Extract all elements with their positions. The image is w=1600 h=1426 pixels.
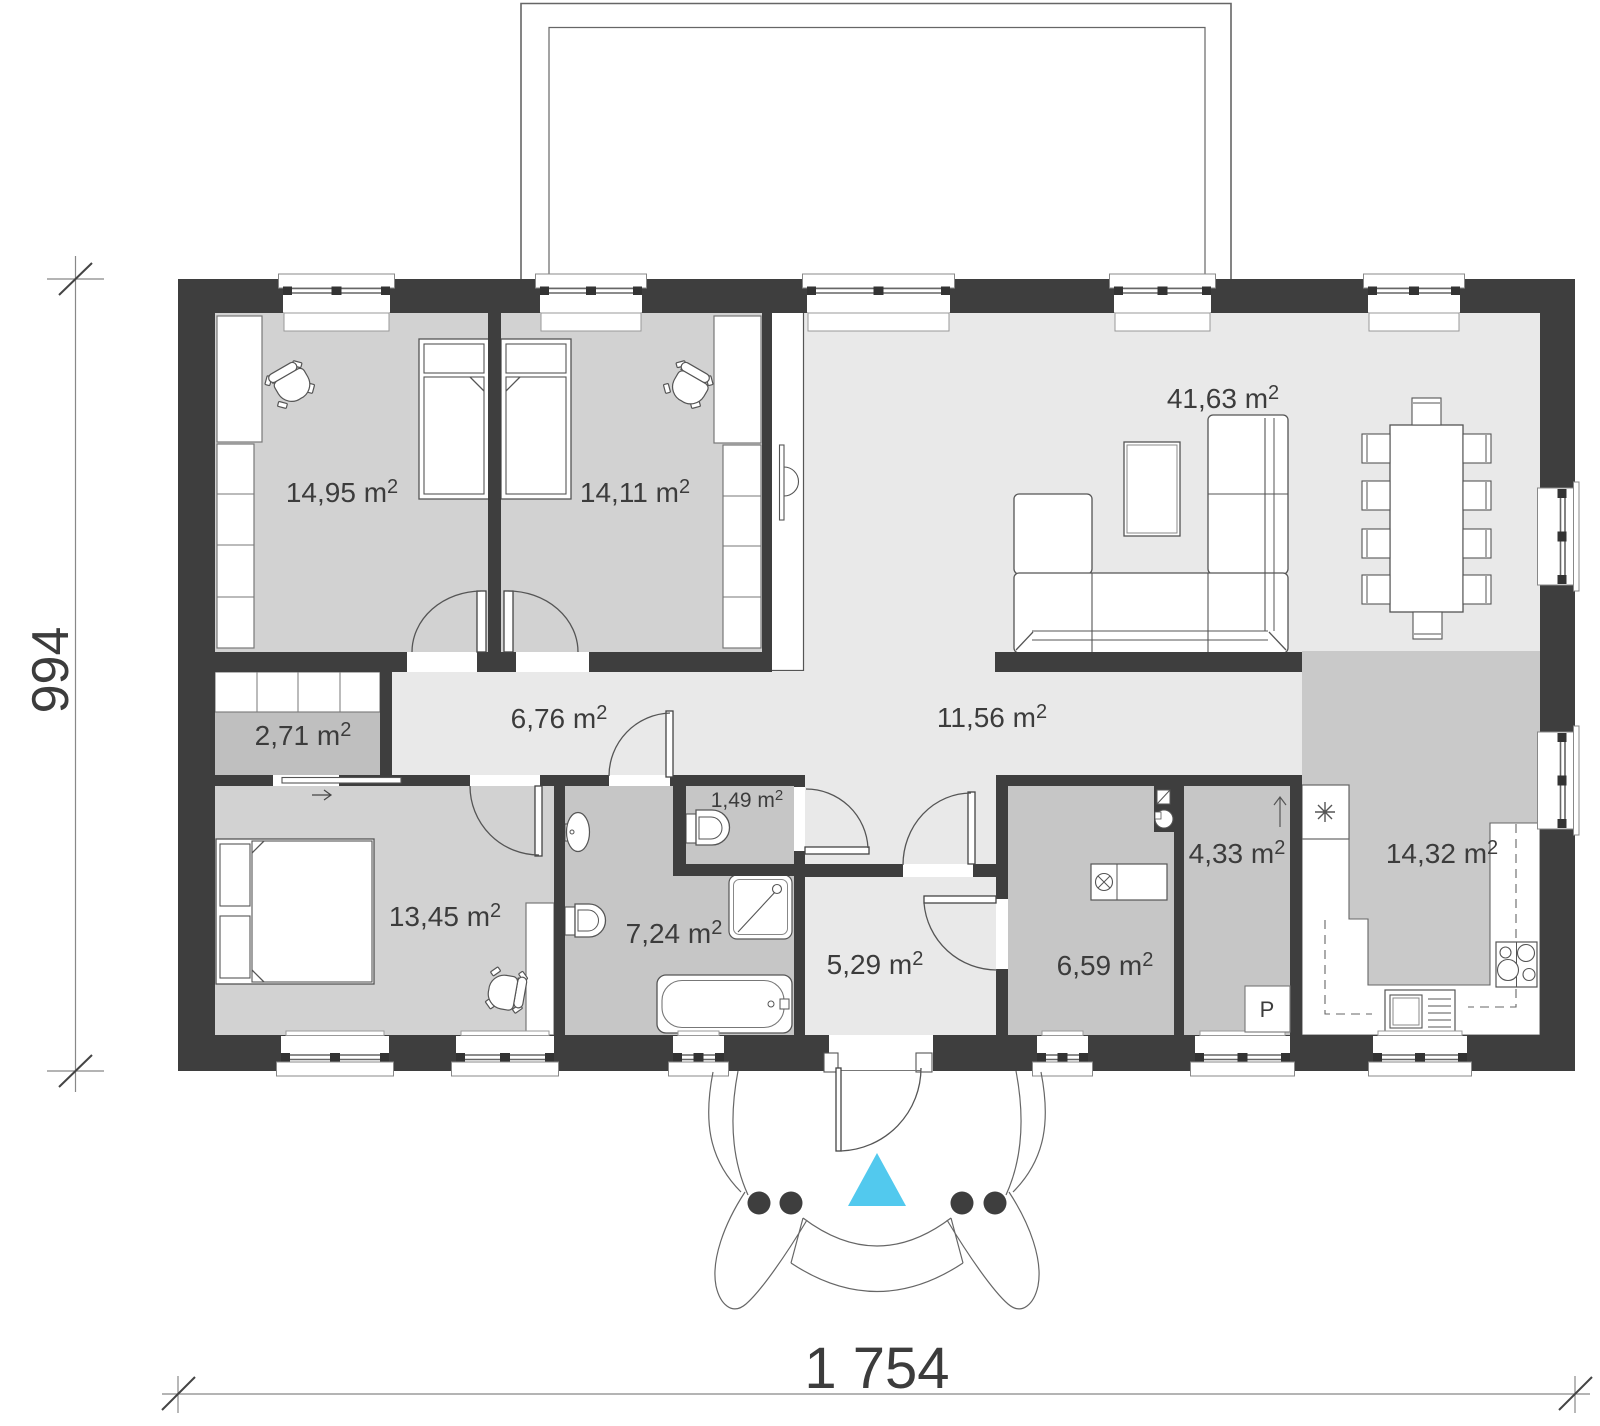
svg-text:6,76 m2: 6,76 m2 [511, 702, 608, 734]
svg-text:14,32 m2: 14,32 m2 [1386, 837, 1498, 869]
svg-text:P: P [1260, 997, 1275, 1022]
svg-text:1 754: 1 754 [804, 1336, 949, 1401]
svg-text:11,56 m2: 11,56 m2 [937, 701, 1047, 733]
svg-text:994: 994 [22, 627, 80, 714]
svg-text:14,11 m2: 14,11 m2 [580, 476, 690, 508]
svg-text:14,95 m2: 14,95 m2 [286, 476, 398, 508]
svg-text:6,59 m2: 6,59 m2 [1057, 949, 1154, 981]
svg-text:13,45 m2: 13,45 m2 [389, 900, 501, 932]
svg-text:5,29 m2: 5,29 m2 [827, 948, 924, 980]
svg-text:41,63 m2: 41,63 m2 [1167, 382, 1279, 414]
svg-text:1,49 m2: 1,49 m2 [711, 787, 784, 812]
svg-text:7,24 m2: 7,24 m2 [626, 917, 723, 949]
svg-text:2,71 m2: 2,71 m2 [255, 719, 352, 751]
svg-text:4,33 m2: 4,33 m2 [1189, 837, 1286, 869]
